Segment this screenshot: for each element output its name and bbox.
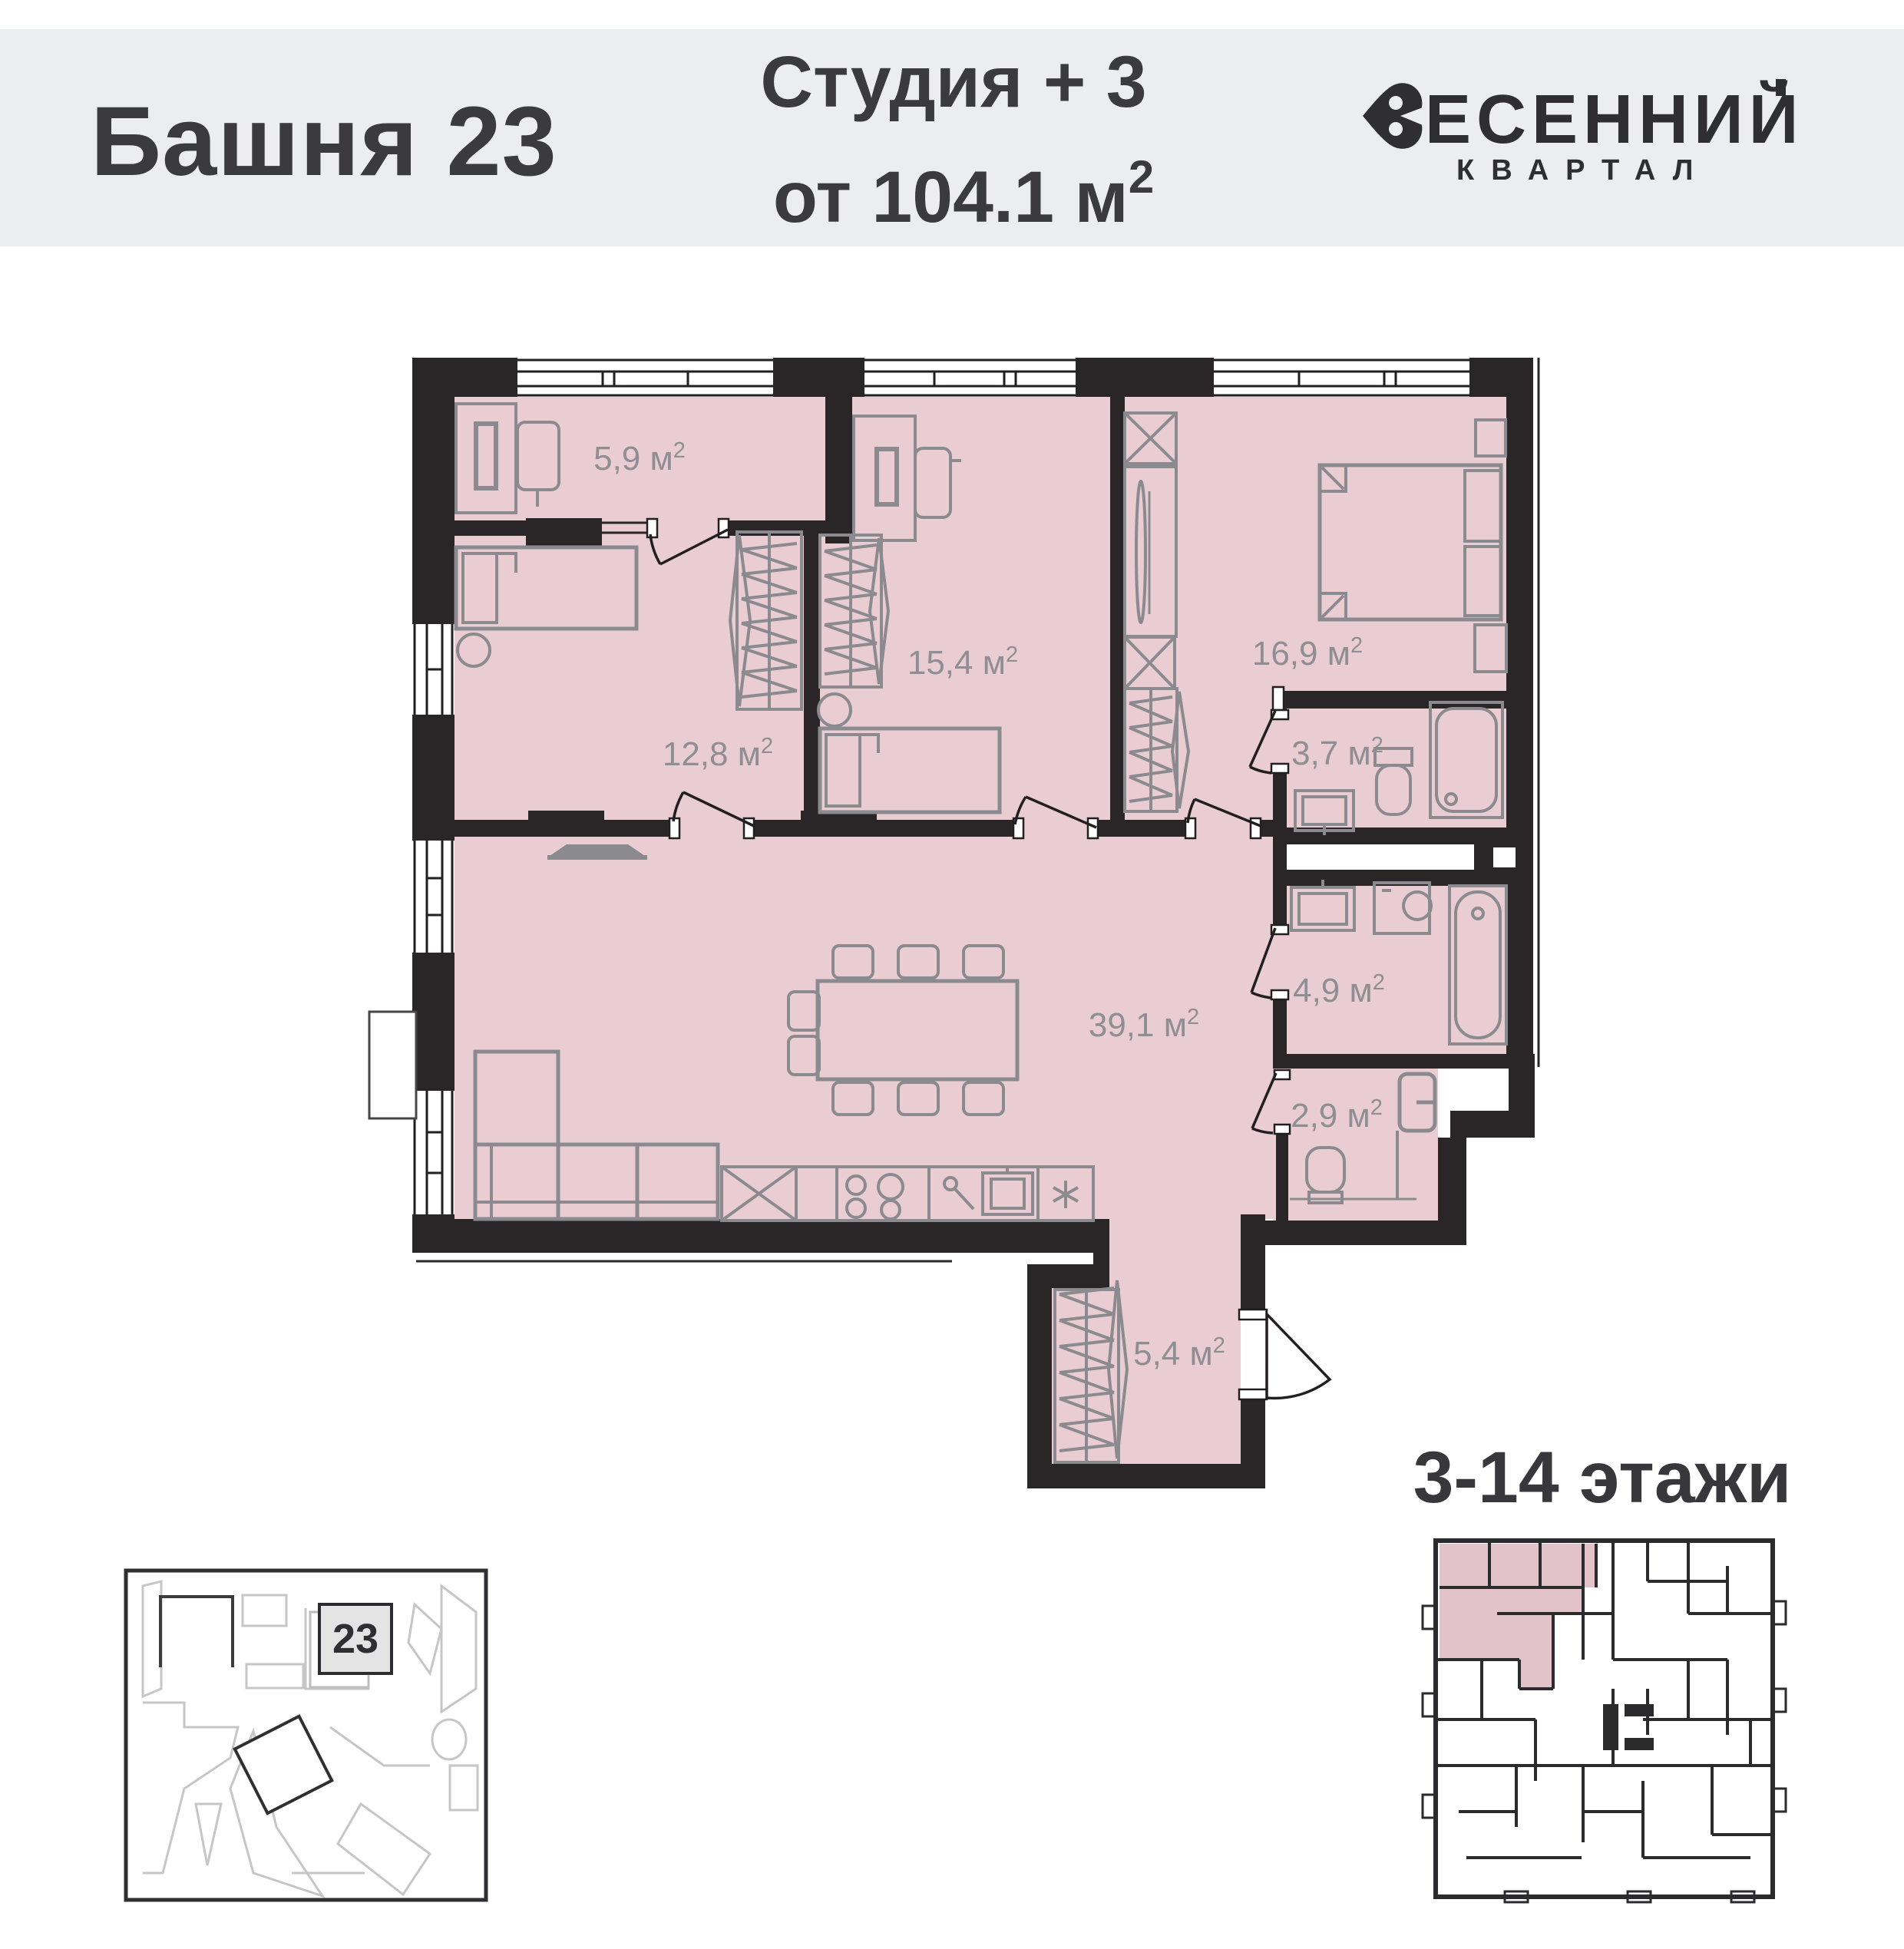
svg-text:2,9 м2: 2,9 м2 (1291, 1095, 1383, 1135)
svg-text:15,4 м2: 15,4 м2 (907, 643, 1018, 682)
svg-text:Башня 23: Башня 23 (91, 87, 557, 197)
svg-text:12,8 м2: 12,8 м2 (663, 734, 773, 773)
svg-text:23: 23 (332, 1616, 378, 1662)
svg-text:3,7 м2: 3,7 м2 (1291, 733, 1383, 772)
svg-text:4,9 м2: 4,9 м2 (1293, 970, 1385, 1009)
svg-text:5,4 м2: 5,4 м2 (1133, 1333, 1225, 1373)
svg-text:3-14 этажи: 3-14 этажи (1413, 1437, 1792, 1518)
svg-text:16,9 м2: 16,9 м2 (1252, 633, 1363, 672)
svg-text:КВАРТАЛ: КВАРТАЛ (1456, 154, 1710, 187)
svg-text:от 104.1 м2: от 104.1 м2 (773, 151, 1154, 238)
svg-text:39,1 м2: 39,1 м2 (1089, 1005, 1199, 1044)
svg-text:5,9 м2: 5,9 м2 (593, 438, 686, 477)
svg-text:ЕСЕННИЙ: ЕСЕННИЙ (1425, 79, 1803, 158)
svg-text:Студия + 3: Студия + 3 (760, 41, 1146, 123)
